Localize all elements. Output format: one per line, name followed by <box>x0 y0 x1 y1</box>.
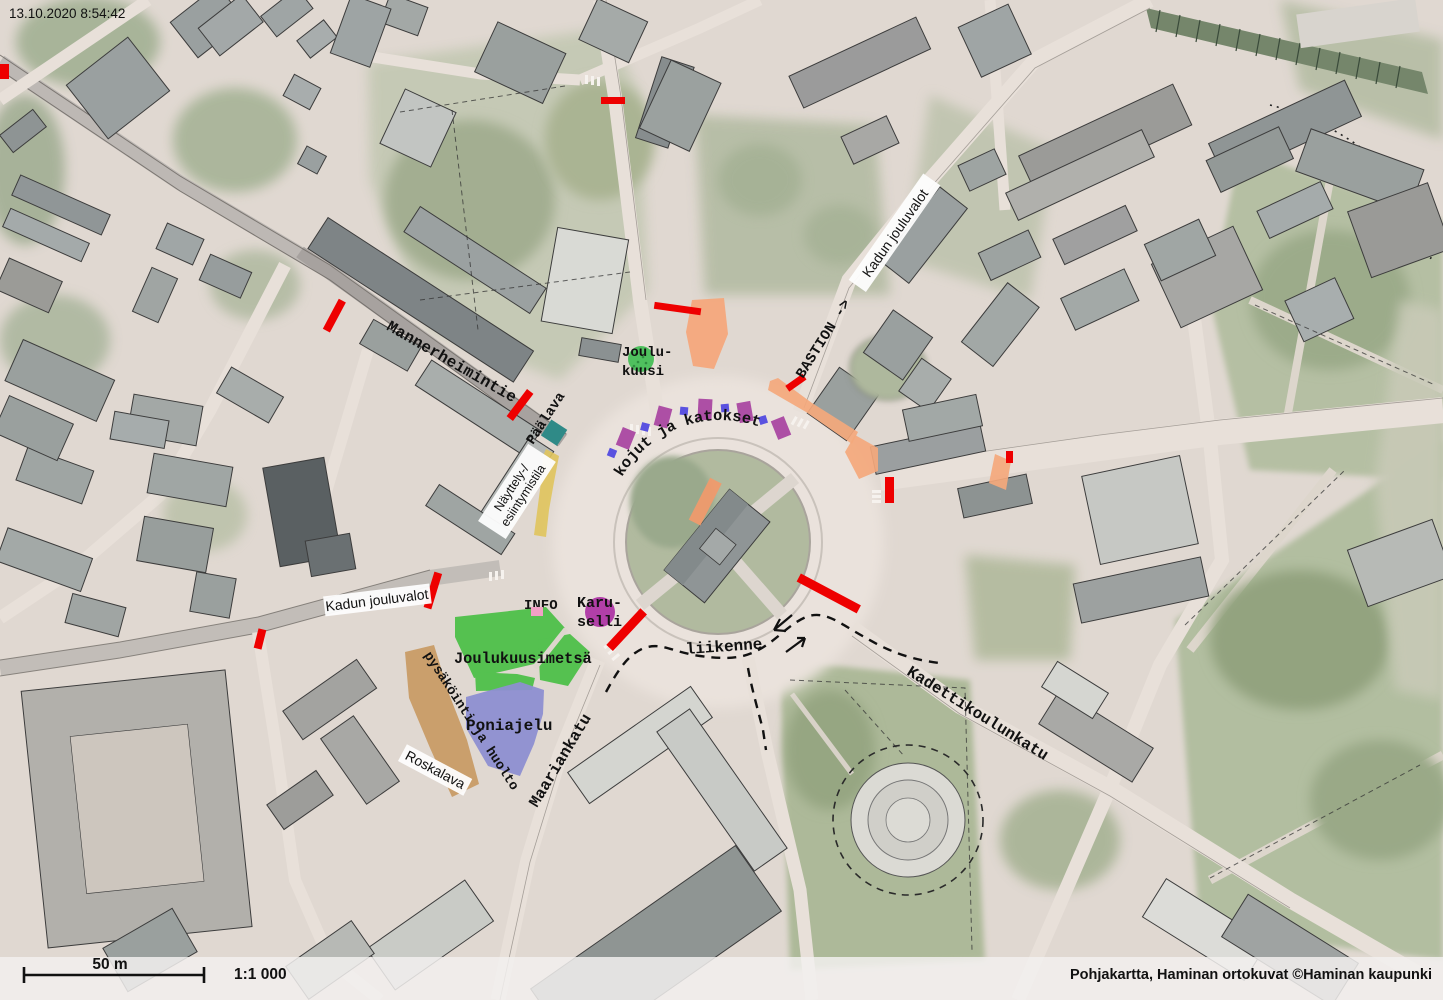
svg-text:kuusi: kuusi <box>622 364 664 380</box>
svg-text:Pohjakartta, Haminan ortokuvat: Pohjakartta, Haminan ortokuvat ©Haminan … <box>1070 967 1432 983</box>
svg-text:13.10.2020 8:54:42: 13.10.2020 8:54:42 <box>9 6 125 21</box>
svg-text:Joulukuusimetsä: Joulukuusimetsä <box>454 650 592 668</box>
svg-text:1:1 000: 1:1 000 <box>234 966 287 983</box>
svg-text:Karu-: Karu- <box>577 595 622 612</box>
svg-text:50 m: 50 m <box>92 956 127 973</box>
svg-text:Joulu-: Joulu- <box>622 345 672 361</box>
svg-text:selli: selli <box>577 614 622 631</box>
